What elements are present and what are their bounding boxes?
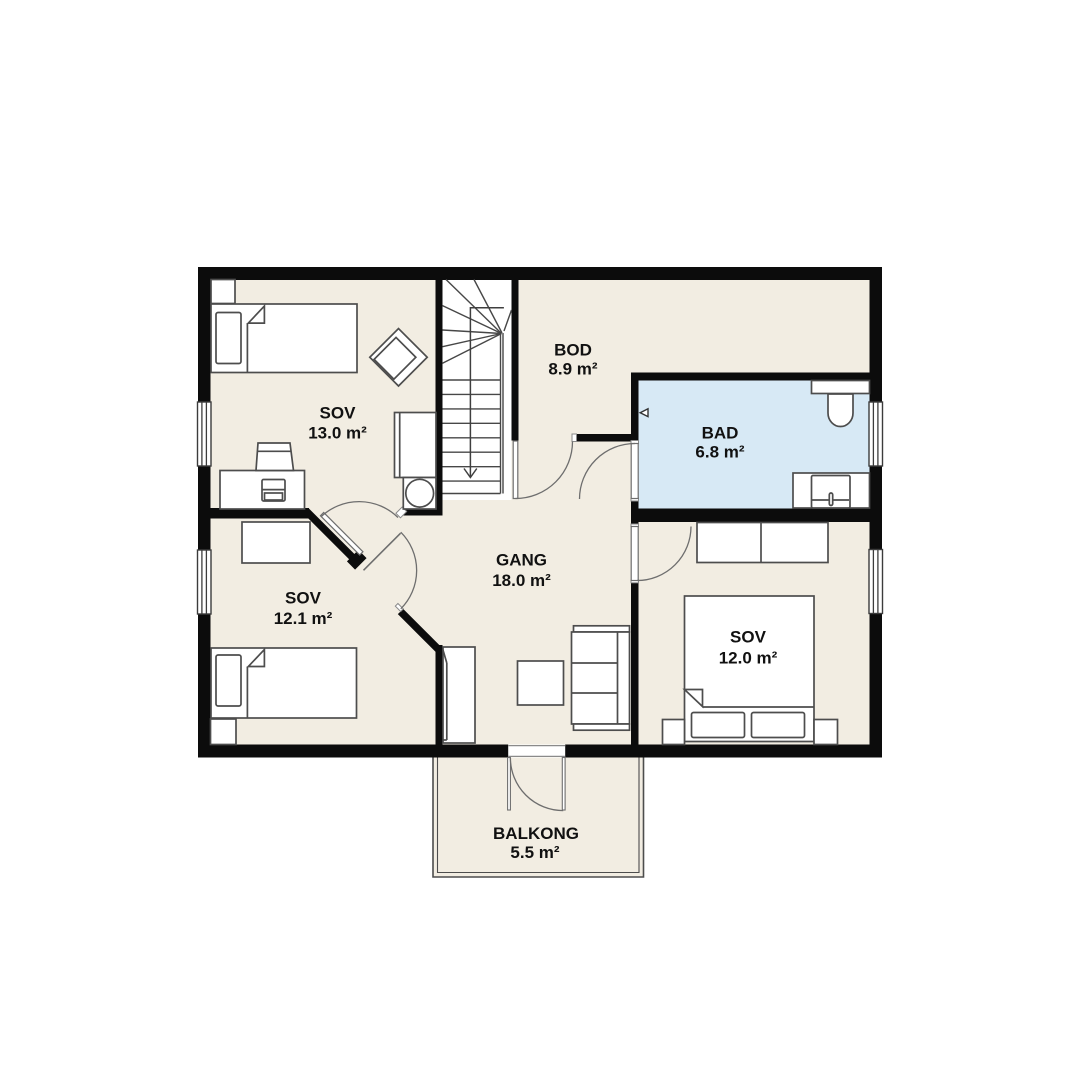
svg-text:12.1 m²: 12.1 m² bbox=[274, 609, 333, 628]
svg-text:BAD: BAD bbox=[702, 424, 739, 443]
svg-text:SOV: SOV bbox=[320, 404, 357, 423]
svg-text:8.9 m²: 8.9 m² bbox=[548, 360, 597, 379]
svg-text:13.0 m²: 13.0 m² bbox=[308, 424, 367, 443]
svg-text:6.8 m²: 6.8 m² bbox=[695, 443, 744, 462]
svg-text:GANG: GANG bbox=[496, 551, 547, 570]
svg-text:SOV: SOV bbox=[730, 628, 767, 647]
svg-text:5.5 m²: 5.5 m² bbox=[510, 843, 559, 862]
svg-text:SOV: SOV bbox=[285, 589, 322, 608]
svg-text:18.0 m²: 18.0 m² bbox=[492, 571, 551, 590]
svg-text:BALKONG: BALKONG bbox=[493, 824, 579, 843]
svg-text:BOD: BOD bbox=[554, 341, 592, 360]
svg-text:12.0 m²: 12.0 m² bbox=[719, 649, 778, 668]
